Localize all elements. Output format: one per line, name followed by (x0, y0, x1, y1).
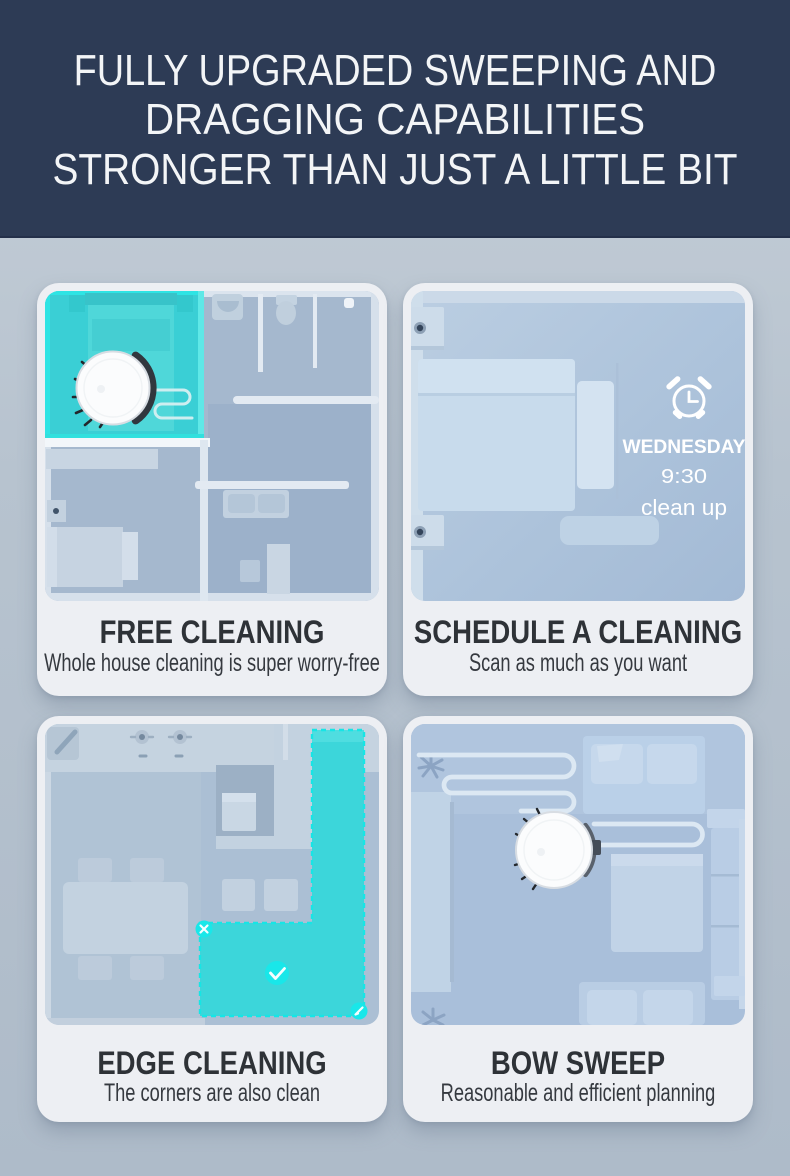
svg-text:9:30: 9:30 (661, 465, 707, 488)
svg-text:clean up: clean up (641, 495, 727, 520)
svg-text:WEDNESDAY: WEDNESDAY (623, 436, 746, 458)
